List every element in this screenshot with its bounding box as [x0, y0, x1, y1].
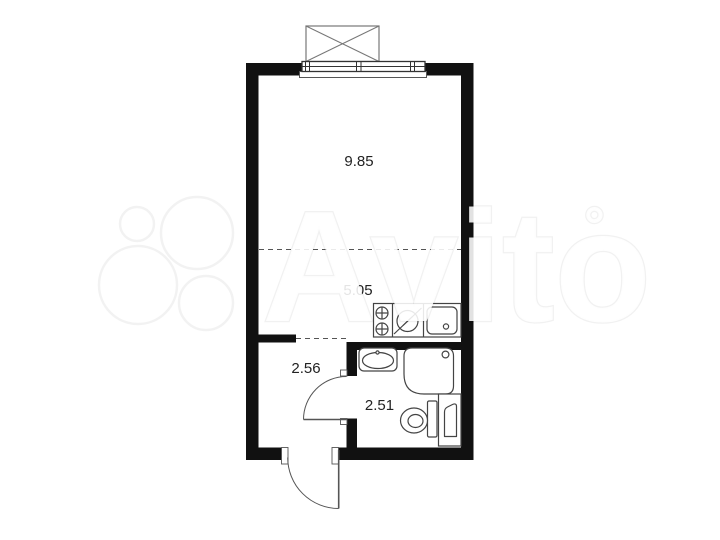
entrance-door-arc — [288, 458, 339, 509]
counter-basin-icon — [427, 307, 457, 334]
wall-right — [461, 63, 474, 460]
bathroom-door — [304, 370, 348, 425]
wall-bottom-left — [246, 448, 282, 461]
wall-bathroom-left-upper — [347, 342, 358, 376]
avito-trademark-mark: ° — [584, 197, 605, 255]
floor-plan-image: 9.85 5.05 2.56 2.51 Avito ° — [0, 0, 720, 540]
floor-plan-canvas: 9.85 5.05 2.56 2.51 Avito ° — [0, 0, 720, 540]
entrance-door-jamb-left — [282, 448, 289, 465]
washer-cabinet-icon — [439, 394, 462, 446]
bathroom-sink-icon — [359, 348, 397, 371]
window-sill — [300, 72, 427, 78]
wall-bottom-right — [339, 448, 474, 461]
bathroom-door-jamb-top — [341, 370, 348, 376]
wall-top-left — [246, 63, 303, 76]
window-assembly — [300, 26, 427, 78]
hallway-area-label: 2.56 — [291, 360, 320, 377]
bathroom-area-label: 2.51 — [365, 397, 394, 414]
wall-hall-divider — [246, 335, 296, 343]
entrance-door-jamb-right — [332, 448, 339, 465]
shower-icon — [404, 348, 454, 394]
wall-left — [246, 63, 259, 460]
bathroom-door-arc — [304, 377, 347, 420]
wall-bathroom-left-lower — [347, 419, 358, 449]
kitchen-area-label: 5.05 — [343, 282, 372, 299]
avito-logo-circles-icon — [99, 197, 233, 330]
kitchen-counter — [374, 304, 462, 338]
living-room-area-label: 9.85 — [344, 153, 373, 170]
toilet-icon — [401, 401, 438, 437]
entrance-door — [282, 448, 339, 509]
